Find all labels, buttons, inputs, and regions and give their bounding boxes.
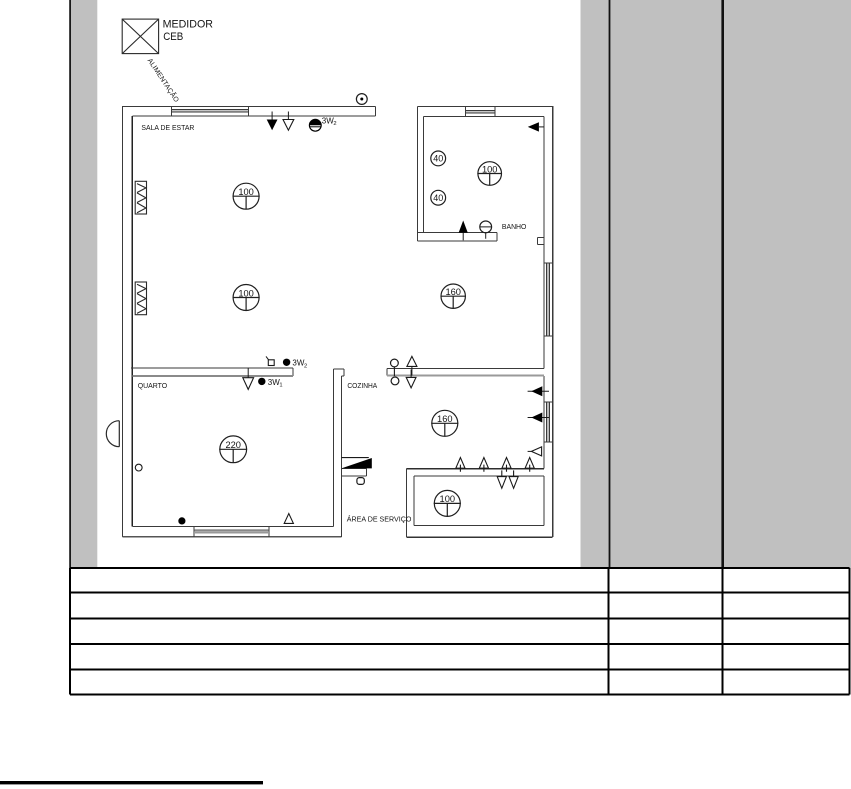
svg-text:SALA DE ESTAR: SALA DE ESTAR xyxy=(141,123,194,132)
svg-text:40: 40 xyxy=(433,154,443,164)
svg-text:160: 160 xyxy=(437,414,453,424)
svg-text:220: 220 xyxy=(225,440,241,450)
svg-text:100: 100 xyxy=(482,164,498,174)
svg-text:QUARTO: QUARTO xyxy=(138,381,167,390)
svg-text:CEB: CEB xyxy=(163,31,183,43)
svg-text:BANHO: BANHO xyxy=(502,222,527,231)
svg-text:100: 100 xyxy=(238,187,254,197)
svg-text:3W: 3W xyxy=(322,117,334,126)
svg-text:MEDIDOR: MEDIDOR xyxy=(163,19,214,31)
svg-text:100: 100 xyxy=(238,288,254,298)
svg-text:160: 160 xyxy=(445,287,461,297)
svg-text:2: 2 xyxy=(304,363,307,369)
svg-text:COZINHA: COZINHA xyxy=(347,381,378,390)
svg-text:3W: 3W xyxy=(292,359,304,368)
svg-text:2: 2 xyxy=(333,121,336,127)
svg-text:40: 40 xyxy=(433,193,443,203)
svg-text:100: 100 xyxy=(440,494,456,504)
svg-text:ÁREA DE SERVIÇO: ÁREA DE SERVIÇO xyxy=(347,515,412,524)
svg-text:3W: 3W xyxy=(268,378,280,387)
svg-text:1: 1 xyxy=(279,383,282,389)
